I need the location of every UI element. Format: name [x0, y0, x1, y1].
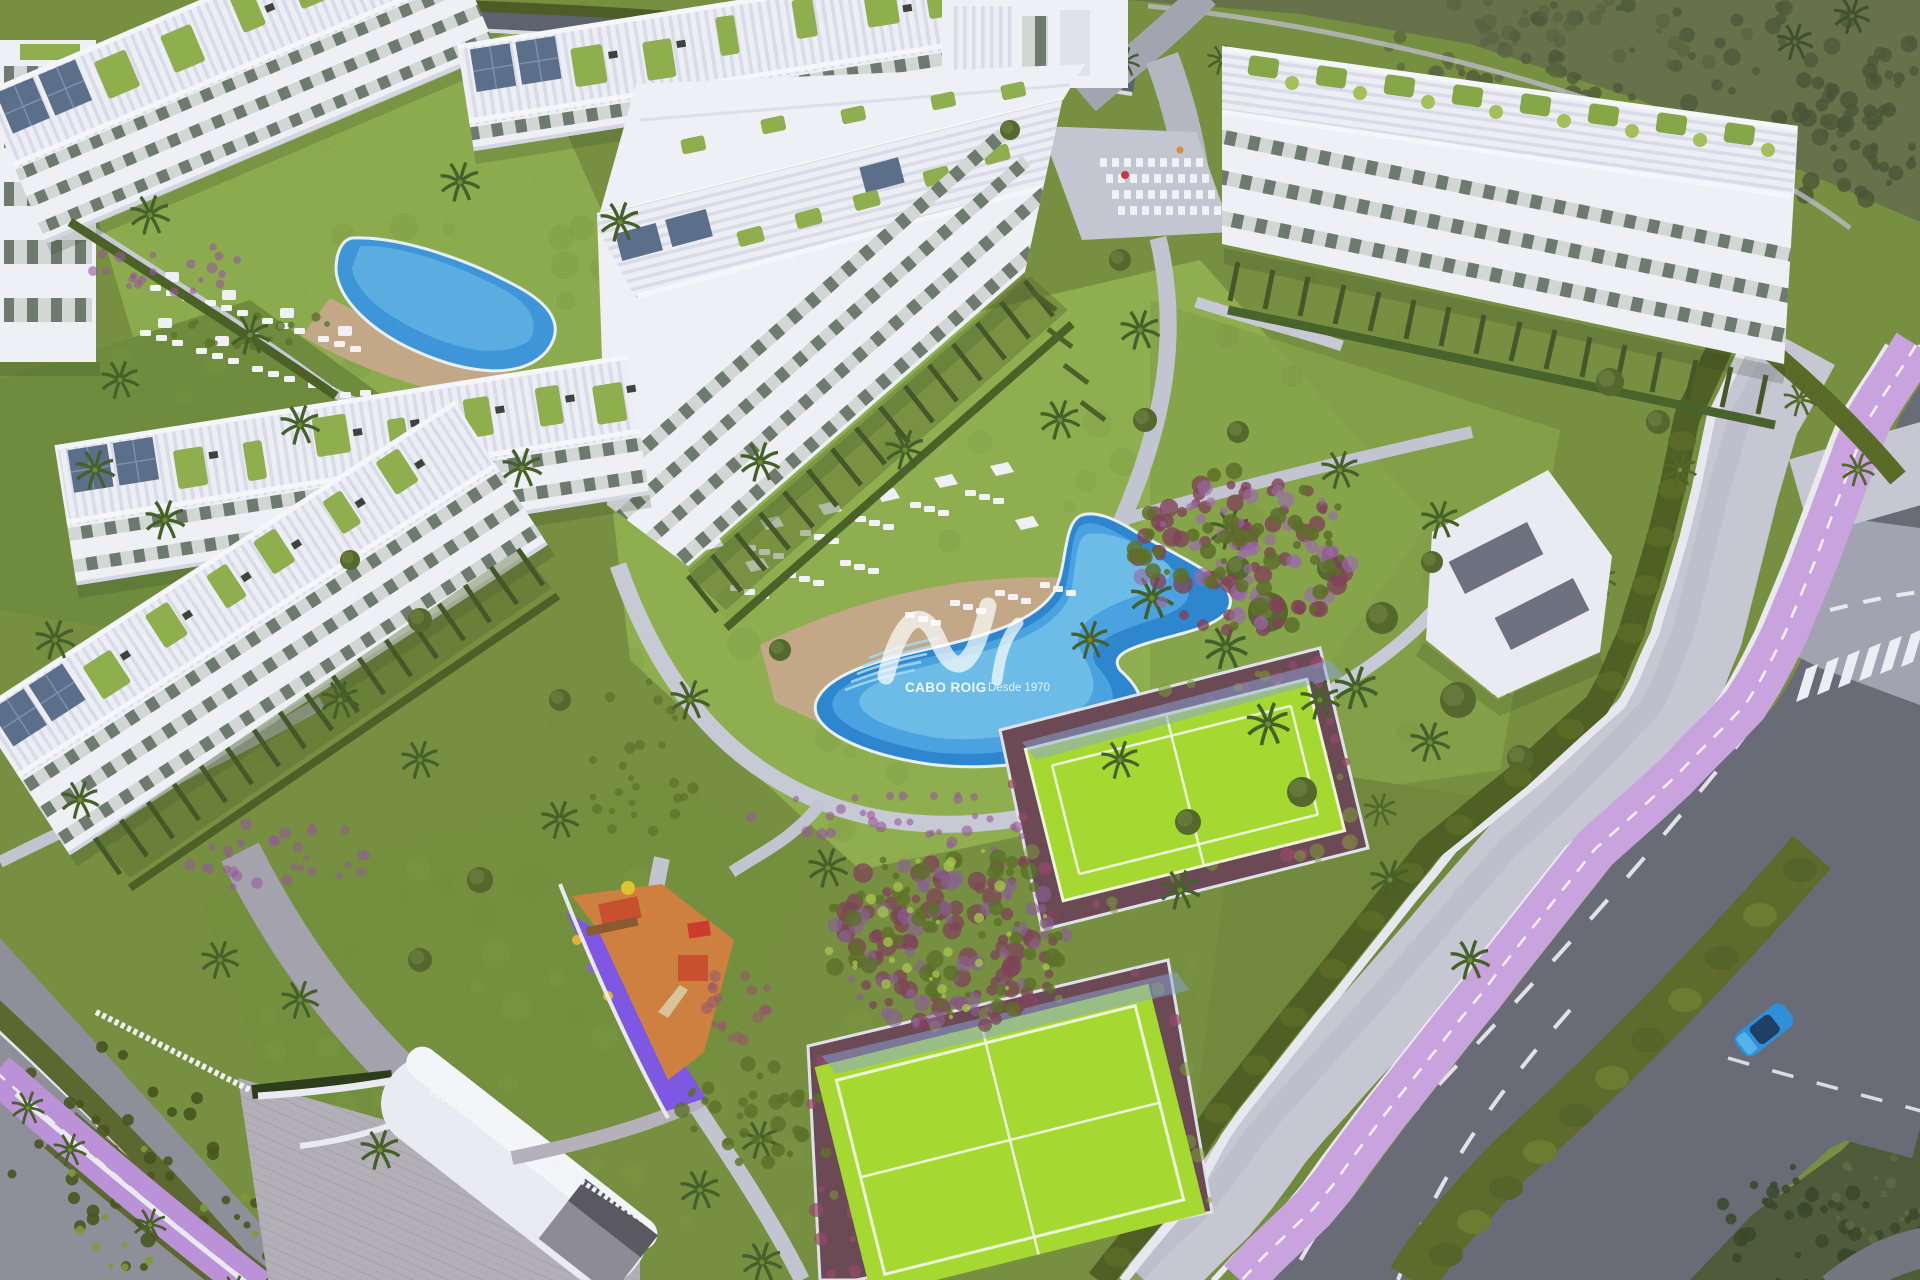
svg-text:Desde 1970: Desde 1970	[988, 682, 1050, 694]
svg-text:CABO ROIG: CABO ROIG	[905, 680, 987, 695]
